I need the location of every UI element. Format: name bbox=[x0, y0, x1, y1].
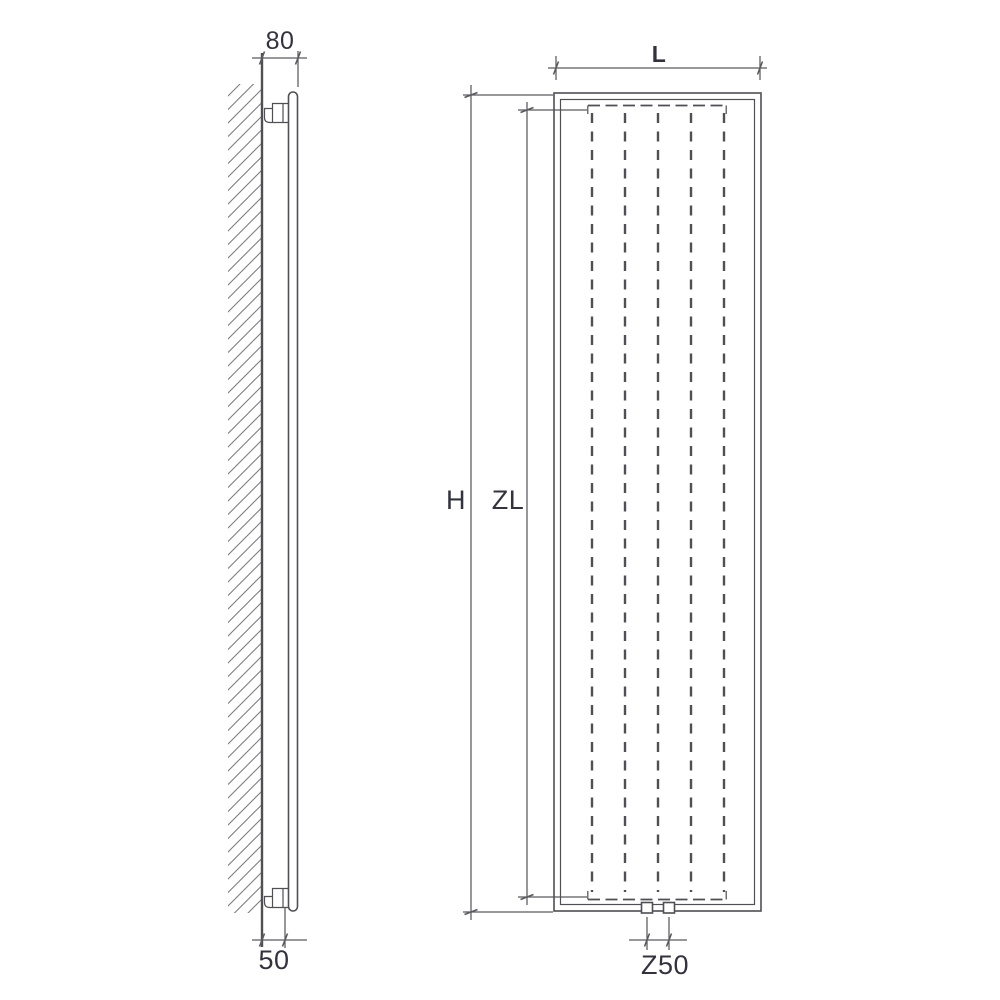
dim-label-z50: Z50 bbox=[641, 950, 689, 980]
dimension-l: L bbox=[548, 41, 767, 80]
dim-label-h: H bbox=[446, 485, 466, 515]
dimension-zl-extensions bbox=[518, 110, 587, 897]
dim-label-l: L bbox=[652, 41, 667, 67]
wall-bracket-bottom bbox=[265, 889, 290, 908]
dimension-50: 50 bbox=[252, 908, 307, 976]
wall-hatch bbox=[228, 84, 262, 913]
dim-label-50: 50 bbox=[258, 945, 289, 975]
front-view: L H ZL bbox=[446, 41, 767, 980]
heating-element-dashed bbox=[588, 106, 726, 900]
connection-port-left bbox=[642, 903, 653, 914]
connection-port-right bbox=[664, 903, 675, 914]
dim-label-zl: ZL bbox=[492, 485, 525, 515]
panel-side-profile bbox=[289, 92, 298, 911]
dimension-z50: Z50 bbox=[629, 917, 689, 980]
wall-bracket-top bbox=[265, 104, 290, 123]
side-view: 80 50 bbox=[228, 27, 307, 975]
dimension-zl: ZL bbox=[492, 102, 534, 905]
radiator-drawing: 80 50 bbox=[0, 0, 1000, 1000]
dim-label-80: 80 bbox=[266, 27, 295, 55]
technical-drawing-canvas: 80 50 bbox=[0, 0, 1000, 1000]
dimension-80: 80 bbox=[252, 27, 307, 87]
